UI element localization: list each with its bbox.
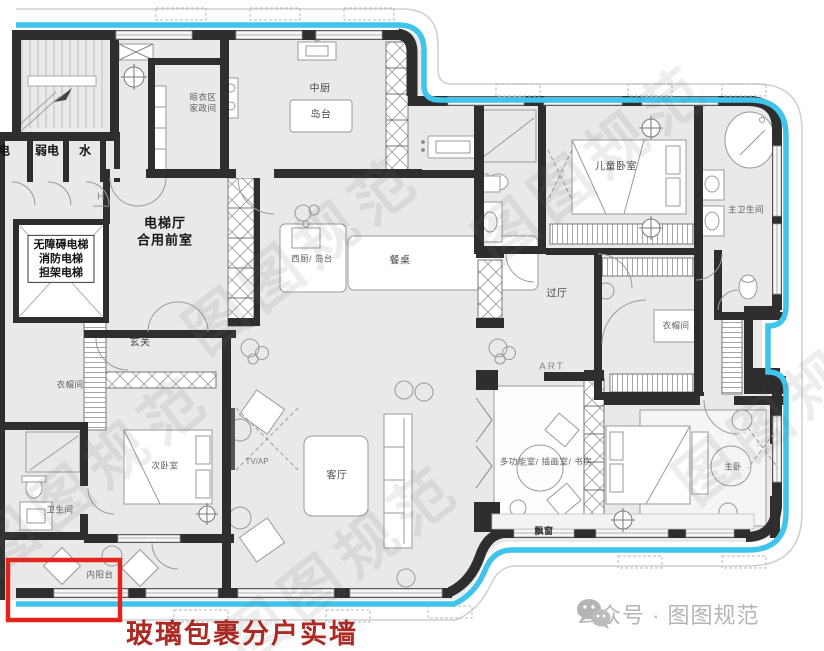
wechat-icon: [576, 598, 612, 630]
floorplan-drawing: [0, 0, 824, 651]
floorplan-page: 图图规范 图图规范 图图规范 图图规范 图图规范 电 弱电 水 H 无障碍电梯 …: [0, 0, 824, 651]
footer-credit: 公众号 · 图图规范: [576, 598, 760, 630]
annotation-caption: 玻璃包裹分户实墙: [126, 612, 358, 651]
